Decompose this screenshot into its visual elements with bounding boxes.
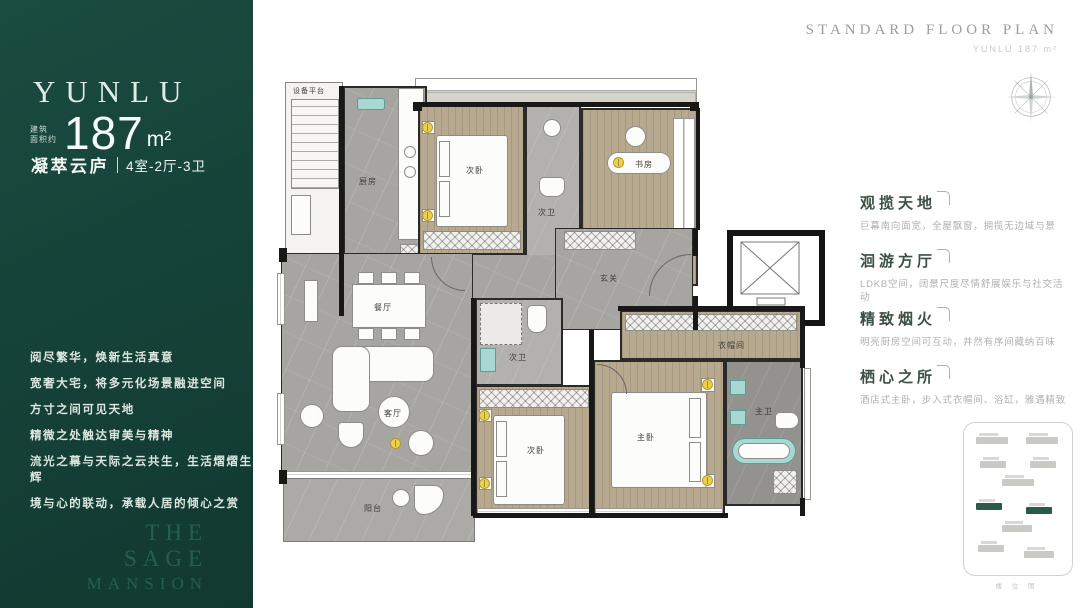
divider — [117, 157, 118, 173]
room-label: 主卫 — [755, 406, 773, 417]
wall — [415, 102, 697, 107]
wall — [473, 513, 728, 518]
poem-line: 境与心的联动，承载人居的倾心之赏 — [30, 495, 253, 511]
room-bedroom-south: 次卧 — [475, 385, 593, 516]
washbasin-icon — [730, 380, 746, 395]
pillow-icon — [439, 141, 450, 177]
pillow-icon — [496, 461, 507, 497]
room-equipment-platform: 设备平台 — [285, 82, 343, 258]
room-label: 玄关 — [600, 273, 618, 284]
feature-title: 栖心之所 — [860, 366, 936, 387]
room-label: 餐厅 — [374, 302, 392, 313]
page: YUNLU 建筑 面积约 187 m² 凝萃云庐 4室-2厅-3卫 阅尽繁华，焕… — [0, 0, 1080, 608]
corner-bracket-icon — [937, 365, 950, 379]
room-balcony: 阳台 — [283, 478, 475, 542]
corner-bracket-icon — [937, 191, 950, 205]
wall — [471, 298, 476, 516]
ceiling-light-icon — [702, 379, 713, 390]
corner-bracket-icon — [937, 307, 950, 321]
feature-desc: 酒店式主卧，步入式衣帽间、浴缸，雅遇精致 — [860, 394, 1068, 407]
brand-logo: YUNLU — [33, 74, 192, 110]
building-icon — [1026, 437, 1058, 444]
washbasin-icon — [480, 348, 496, 372]
sideboard-icon — [304, 280, 318, 322]
washbasin-icon — [543, 119, 561, 137]
unit-name: 凝萃云庐 — [31, 152, 109, 177]
watermark: THE SAGE MANSION — [60, 520, 208, 594]
washbasin-icon — [730, 410, 746, 425]
shower-icon — [480, 303, 522, 345]
toilet-icon — [527, 305, 547, 333]
watermark-line2: MANSION — [60, 574, 208, 594]
side-table-icon — [300, 404, 324, 428]
poem-line: 精微之处触达审美与精神 — [30, 427, 253, 443]
feature-title: 精致烟火 — [860, 308, 936, 329]
building-icon — [1002, 479, 1034, 486]
unit-title: 凝萃云庐 4室-2厅-3卫 — [31, 152, 206, 177]
wardrobe-icon — [479, 389, 589, 408]
room-bathroom-mid: 次卫 — [475, 298, 563, 386]
chair-icon — [404, 272, 420, 284]
feature-item: 观揽天地 巨幕南向面宽，全屋飘窗，拥揽无边域与景 — [860, 192, 1068, 233]
feature-item: 精致烟火 明亮厨房空间可互动，井然有序间藏纳百味 — [860, 308, 1068, 349]
ceiling-light-icon — [613, 157, 624, 168]
hallway — [473, 255, 557, 300]
feature-desc: LDKB空间，阔景尺度尽情舒展娱乐与社交活动 — [860, 278, 1068, 304]
wardrobe-icon — [423, 231, 521, 250]
bathtub-inner — [738, 443, 790, 459]
feature-title: 观揽天地 — [860, 192, 936, 213]
room-label: 书房 — [635, 159, 653, 170]
site-map-caption: 楼 位 图 — [963, 580, 1071, 590]
room-closet: 衣帽间 — [620, 310, 802, 360]
ceiling-light-icon — [422, 122, 433, 133]
toilet-icon — [775, 412, 799, 429]
area-label-line2: 面积约 — [30, 135, 57, 145]
feature-item: 栖心之所 酒店式主卧，步入式衣帽间、浴缸，雅遇精致 — [860, 366, 1068, 407]
wall — [693, 228, 698, 256]
shelf-icon — [291, 99, 339, 189]
chair-icon — [625, 126, 646, 147]
wall-column — [279, 470, 287, 484]
site-map — [963, 422, 1073, 576]
room-master-bathroom: 主卫 — [725, 360, 803, 506]
chair-icon — [381, 328, 397, 340]
building-icon — [1024, 551, 1054, 558]
window — [804, 368, 811, 500]
feature-desc: 巨幕南向面宽，全屋飘窗，拥揽无边域与景 — [860, 220, 1068, 233]
wall — [696, 108, 700, 230]
toilet-icon — [539, 177, 565, 197]
room-label: 次卫 — [538, 207, 556, 218]
wall — [589, 330, 594, 516]
building-icon — [1030, 461, 1056, 468]
page-subtitle: YUNLU 187 m² — [790, 44, 1058, 54]
chair-icon — [381, 272, 397, 284]
area-value: 187 — [64, 112, 144, 154]
watermark-line1: THE SAGE — [60, 520, 208, 572]
area-label: 建筑 面积约 — [30, 125, 57, 145]
building-icon-highlighted — [976, 503, 1002, 510]
window — [277, 393, 285, 445]
floor-plan: 设备平台 厨房 次卧 次卫 — [255, 58, 851, 548]
sofa-chaise-icon — [332, 346, 370, 412]
wall — [800, 498, 805, 516]
stove-burner-icon — [404, 146, 416, 158]
chair-icon — [358, 328, 374, 340]
pillow-icon — [689, 442, 701, 482]
round-table-icon — [392, 489, 410, 507]
wall — [800, 308, 805, 368]
lounge-chair-icon — [414, 485, 444, 515]
cabinet-icon — [291, 195, 311, 235]
page-title: STANDARD FLOOR PLAN — [790, 22, 1058, 39]
chair-icon — [404, 328, 420, 340]
ceiling-light-icon — [479, 410, 490, 421]
room-label: 厨房 — [359, 176, 377, 187]
room-bedroom-north: 次卧 — [418, 105, 525, 255]
wall — [339, 86, 344, 316]
armchair-icon — [408, 430, 434, 456]
sidebar: YUNLU 建筑 面积约 187 m² 凝萃云庐 4室-2厅-3卫 阅尽繁华，焕… — [0, 0, 253, 608]
building-icon — [976, 437, 1008, 444]
chair-icon — [358, 272, 374, 284]
shoe-cabinet-icon — [564, 231, 636, 250]
sink-icon — [357, 98, 385, 110]
poem-line: 流光之幕与天际之云共生，生活熠熠生辉 — [30, 453, 253, 485]
room-label: 次卧 — [466, 165, 484, 176]
area-unit: m² — [147, 128, 172, 152]
room-label: 客厅 — [384, 408, 402, 419]
poem-line: 方寸之间可见天地 — [30, 401, 253, 417]
wall — [693, 296, 698, 330]
area-label-line1: 建筑 — [30, 125, 57, 135]
wall-column — [279, 248, 287, 262]
wall-column — [690, 102, 699, 111]
pillow-icon — [689, 398, 701, 438]
ceiling-light-icon — [390, 438, 401, 449]
marketing-copy: 阅尽繁华，焕新生活真意 宽奢大宅，将多元化场景融进空间 方寸之间可见天地 精微之… — [30, 349, 253, 521]
shower-icon — [773, 470, 797, 494]
building-icon — [978, 545, 1004, 552]
building-icon — [1002, 525, 1032, 532]
building-icon-highlighted — [1026, 507, 1052, 514]
ceiling-light-icon — [702, 475, 713, 486]
room-label: 次卧 — [527, 445, 545, 456]
corner-bracket-icon — [937, 249, 950, 263]
building-icon — [980, 461, 1006, 468]
wardrobe-icon — [625, 314, 797, 331]
area-figure: 建筑 面积约 187 m² — [30, 112, 171, 154]
feature-item: 洄游方厅 LDKB空间，阔景尺度尽情舒展娱乐与社交活动 — [860, 250, 1068, 304]
ceiling-light-icon — [422, 210, 433, 221]
compass-icon — [1002, 68, 1060, 126]
room-label: 阳台 — [364, 503, 382, 514]
pillow-icon — [496, 421, 507, 457]
room-hall: 餐厅 客厅 — [281, 253, 473, 481]
stove-burner-icon — [404, 166, 416, 178]
pillow-icon — [439, 181, 450, 217]
window — [277, 273, 285, 325]
poem-line: 宽奢大宅，将多元化场景融进空间 — [30, 375, 253, 391]
ceiling-light-icon — [479, 478, 490, 489]
room-label: 衣帽间 — [718, 340, 745, 351]
feature-title: 洄游方厅 — [860, 250, 936, 271]
wall — [618, 306, 805, 311]
unit-spec: 4室-2厅-3卫 — [126, 155, 206, 175]
room-label: 主卧 — [637, 432, 655, 443]
armchair-icon — [338, 422, 364, 448]
poem-line: 阅尽繁华，焕新生活真意 — [30, 349, 253, 365]
room-label: 次卫 — [509, 352, 527, 363]
room-label: 设备平台 — [293, 86, 325, 96]
feature-desc: 明亮厨房空间可互动，井然有序间藏纳百味 — [860, 336, 1068, 349]
wall-column — [413, 102, 422, 111]
